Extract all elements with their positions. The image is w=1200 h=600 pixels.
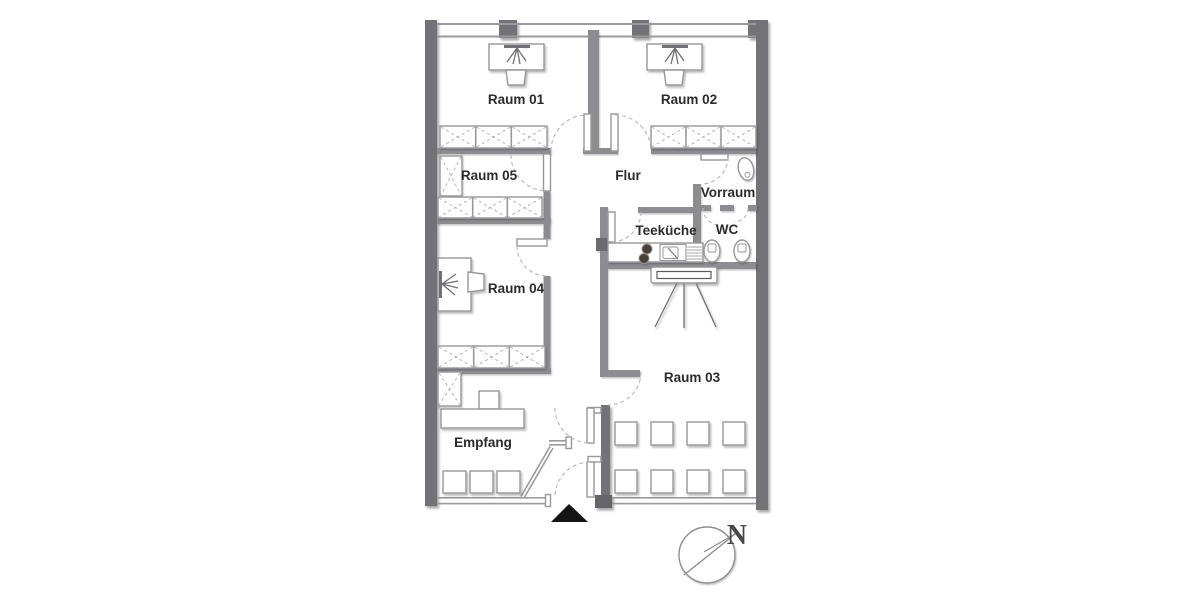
door-leaf-raum04 [517, 239, 547, 246]
screen-tripod-legs [655, 283, 716, 328]
tall-cabinet-raum05 [440, 156, 462, 196]
wall-entrance-right [601, 405, 610, 497]
chair-icon [651, 470, 673, 493]
toilet-flush-icon [708, 244, 716, 252]
door-leaf-raum01 [584, 114, 591, 151]
door-leaf-teekueche [608, 212, 615, 242]
door-swing-arc [701, 157, 728, 184]
entrance-jamb [546, 495, 551, 507]
chair-icon [443, 471, 466, 493]
wall-raum04-east-stub [544, 224, 551, 239]
desk-raum01 [489, 44, 544, 85]
chair-icon [723, 470, 745, 493]
wall-raum03-door-ledge [600, 370, 640, 377]
cabinet-row-raum05 [438, 197, 542, 218]
office-chair-icon [664, 70, 684, 85]
room-label-wc: WC [716, 222, 739, 237]
chair-icon [615, 422, 637, 445]
entrance-vestibule-glass [521, 437, 572, 498]
chair-icon [687, 422, 709, 445]
wall-exterior-left [425, 20, 437, 506]
room-label-raum05: Raum 05 [461, 168, 518, 183]
wall-raum01-south [437, 148, 551, 154]
wall-wc-north-right [748, 205, 757, 211]
desk-panel [439, 271, 442, 298]
door-leaf-vestibule [587, 408, 594, 443]
room-label-raum01: Raum 01 [488, 92, 545, 107]
entrance-door-jamb [588, 457, 601, 463]
door-leaf-vorraum [701, 154, 728, 160]
wall-teekueche-west [600, 207, 608, 370]
wall-raum05-south [437, 218, 551, 224]
chair-icon [687, 470, 709, 493]
floorplan-canvas: Raum 01 Raum 02 Raum 05 Flur Vorraum Tee… [0, 0, 1200, 600]
wall-corner-top-right [748, 20, 768, 38]
wall-teekueche-north [638, 207, 694, 213]
room-label-raum04: Raum 04 [488, 281, 545, 296]
room-label-empfang: Empfang [454, 435, 512, 450]
door-leaf-entrance [587, 462, 594, 497]
room-label-raum03: Raum 03 [664, 370, 721, 385]
stove-burner-icon [639, 254, 649, 264]
desk-raum04 [438, 258, 484, 311]
room-label-vorraum: Vorraum [701, 185, 756, 200]
chair-icon [651, 422, 673, 445]
waiting-chairs-empfang [443, 471, 520, 493]
room-label-raum02: Raum 02 [661, 92, 717, 107]
chair-icon [497, 471, 520, 493]
floorplan-drawing: Raum 01 Raum 02 Raum 05 Flur Vorraum Tee… [0, 0, 1200, 600]
kitchen-unit [608, 243, 703, 264]
room-label-flur: Flur [615, 168, 641, 183]
wall-entrance-base-block [595, 495, 612, 508]
stove-burner-icon [642, 244, 652, 254]
reception-desk-icon [441, 409, 524, 428]
wall-raum02-south [651, 148, 756, 154]
door-swing-arc [555, 462, 590, 497]
north-label: N [727, 520, 747, 551]
door-swing-arc [551, 115, 587, 151]
office-chair-icon [468, 272, 484, 292]
cabinet-row-raum01 [440, 126, 547, 148]
chair-icon [615, 470, 637, 493]
wall-wc-north-left [693, 205, 711, 211]
cabinet-row-raum04 [438, 346, 545, 368]
door-leaf-raum05 [544, 154, 551, 191]
facade-pillar [499, 20, 517, 38]
wall-wc-north-stub [720, 205, 734, 211]
chair-icon [470, 471, 493, 493]
projector-screen [651, 267, 717, 328]
seminar-chairs-raum03 [615, 422, 745, 493]
chair-icon [723, 422, 745, 445]
cabinet-row-raum02 [651, 126, 756, 148]
reception-counter-element [479, 391, 499, 409]
door-swing-arc [615, 115, 651, 151]
entrance-arrow-icon [551, 504, 588, 522]
screen-slot [657, 272, 711, 279]
desk-panel [662, 45, 688, 48]
door-leaf-raum02 [611, 114, 618, 151]
door-swing-arc [517, 246, 547, 276]
door-swing-arc-wc-right [734, 208, 748, 222]
vestibule-jamb [566, 437, 572, 449]
office-chair-icon [506, 70, 526, 85]
desk-panel [504, 45, 530, 48]
tall-cabinet-empfang [438, 372, 461, 406]
washbasin-icon [736, 156, 756, 182]
wall-exterior-right [756, 20, 768, 510]
north-compass-icon: N [679, 520, 747, 583]
room-label-teekueche: Teeküche [635, 223, 697, 238]
desk-raum02 [647, 44, 702, 85]
door-swing-arc [555, 408, 590, 443]
facade-pillar [632, 20, 649, 38]
toilet-flush-icon [738, 244, 746, 252]
